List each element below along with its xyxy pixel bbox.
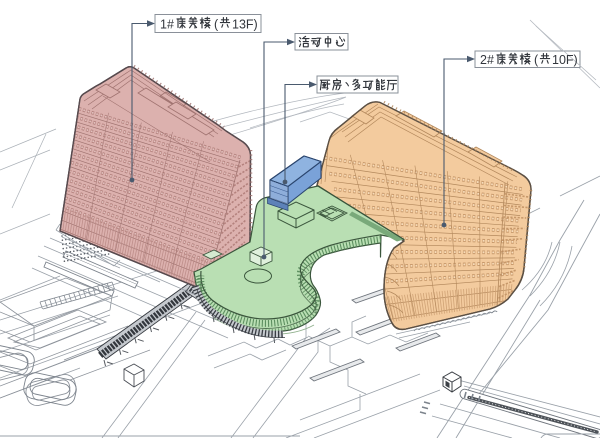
svg-text:1#: 1# <box>160 18 174 32</box>
svg-text:13F): 13F) <box>232 18 258 32</box>
svg-text:2#: 2# <box>480 53 494 67</box>
svg-text:10F): 10F) <box>552 53 578 67</box>
